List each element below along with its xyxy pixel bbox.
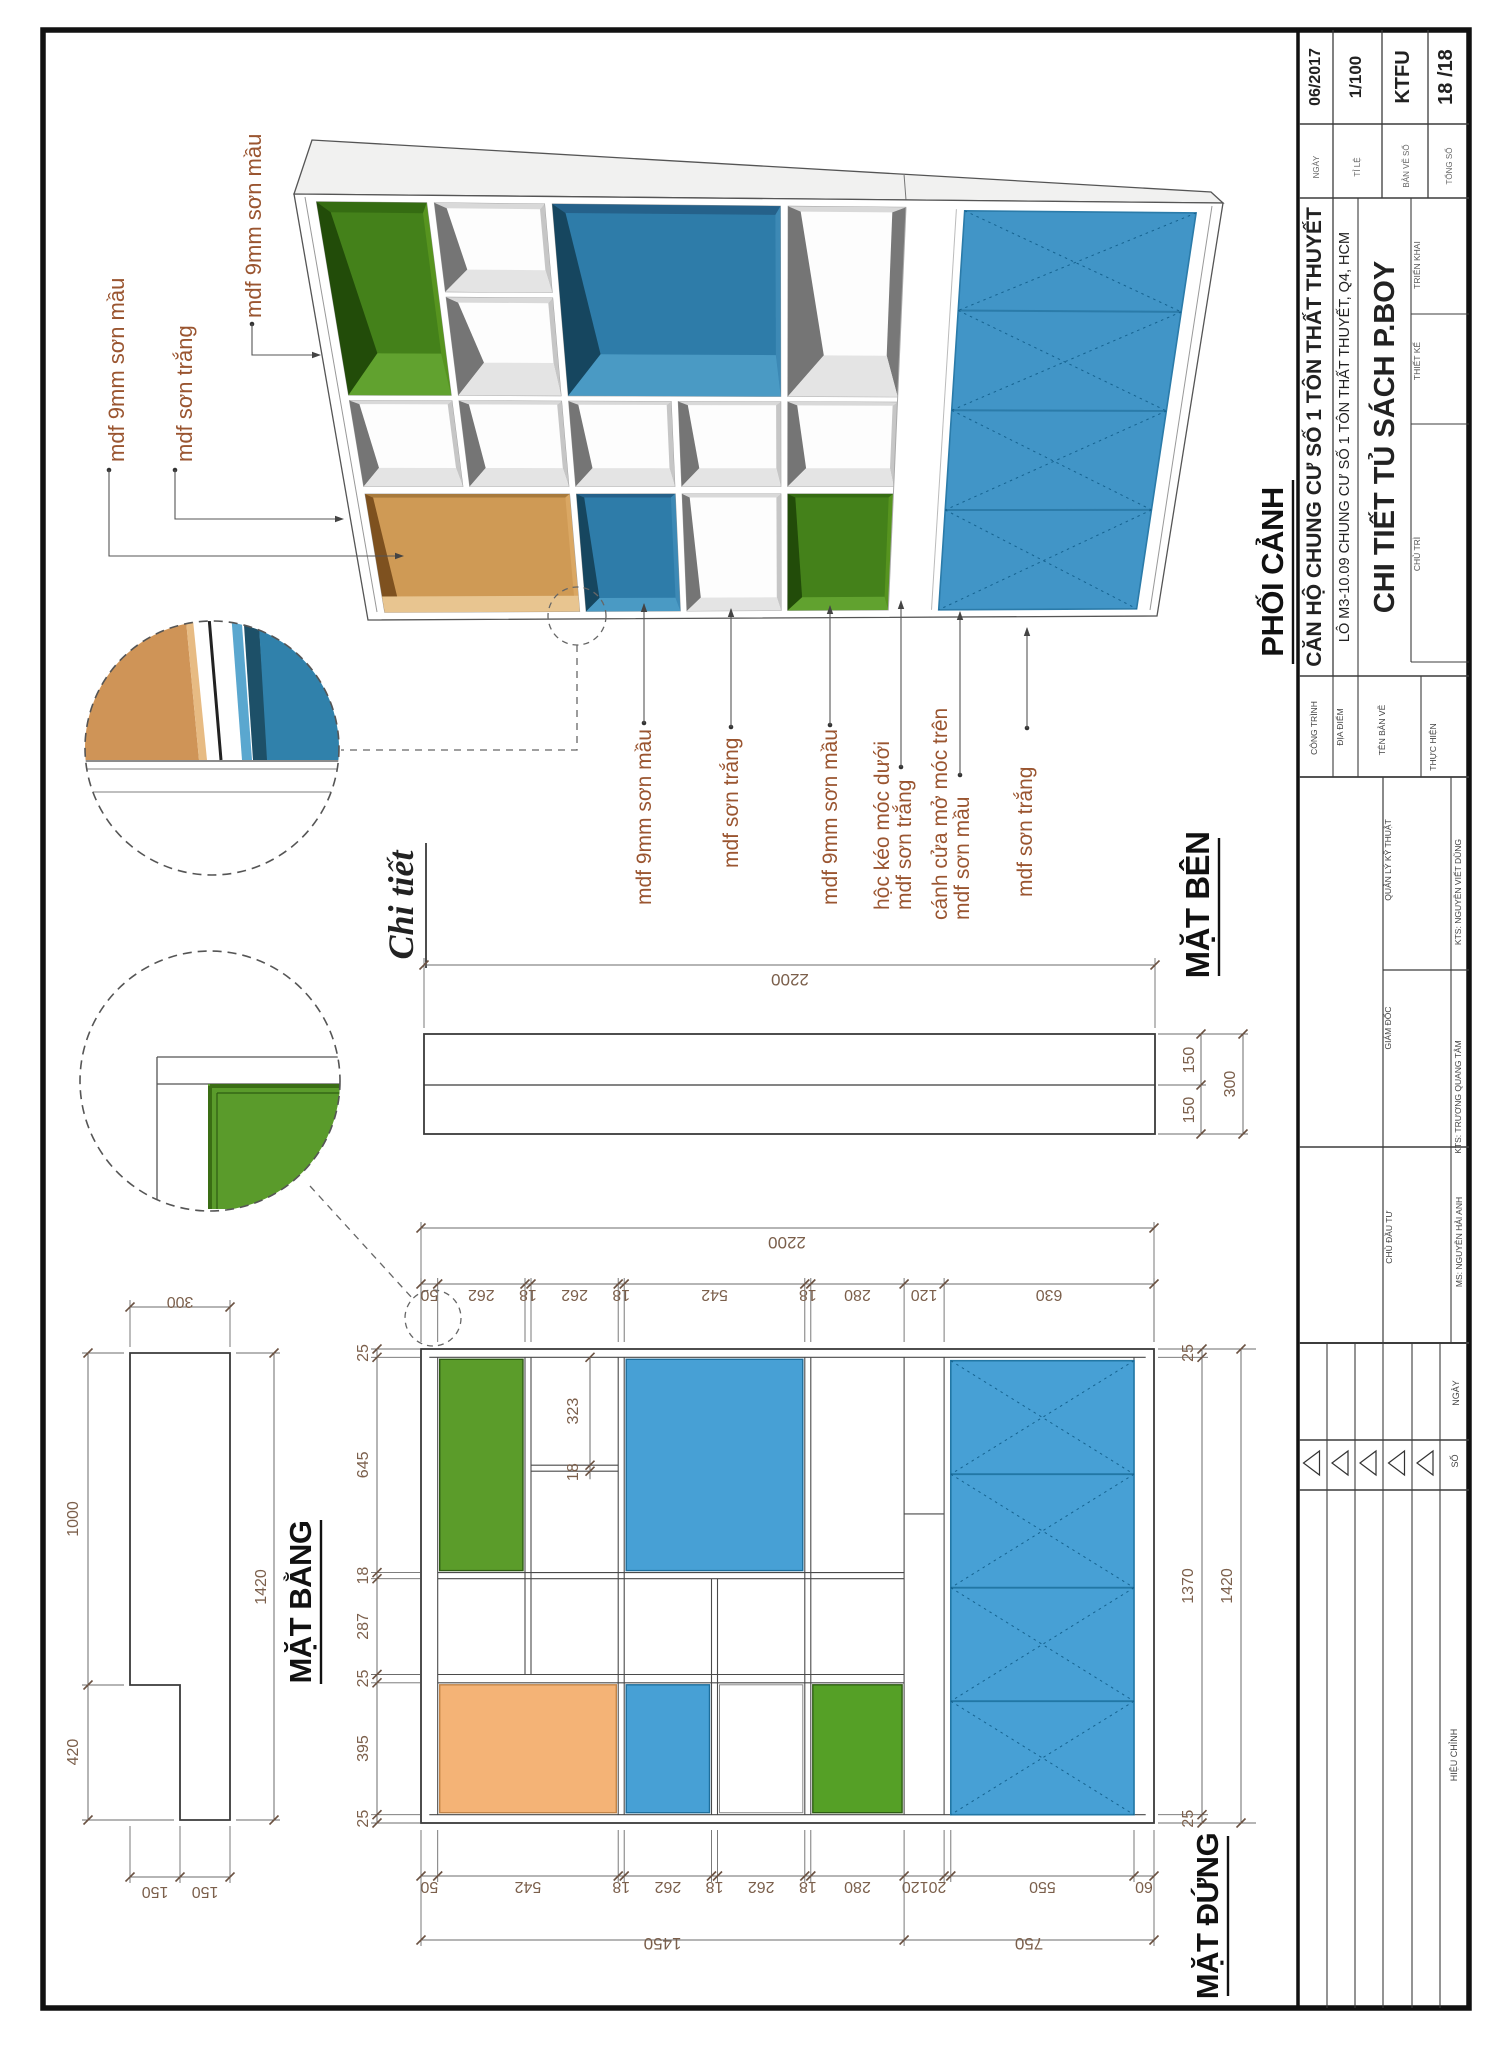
- svg-text:mdf sơn trắng: mdf sơn trắng: [1014, 767, 1037, 898]
- svg-text:1450: 1450: [644, 1934, 682, 1953]
- svg-text:300: 300: [167, 1293, 194, 1310]
- svg-text:395: 395: [355, 1735, 372, 1762]
- svg-text:25: 25: [1180, 1810, 1197, 1828]
- svg-text:50: 50: [420, 1878, 438, 1895]
- svg-text:MẶT BÊN: MẶT BÊN: [1179, 832, 1216, 979]
- svg-text:CHỦ ĐẦU TƯ: CHỦ ĐẦU TƯ: [1383, 1210, 1394, 1263]
- svg-text:TỔNG SỐ: TỔNG SỐ: [1444, 148, 1454, 185]
- svg-text:150: 150: [142, 1883, 169, 1900]
- svg-text:262: 262: [468, 1286, 495, 1303]
- svg-text:MẶT ĐỨNG: MẶT ĐỨNG: [1189, 1833, 1225, 1999]
- svg-text:mdf sơn trắng: mdf sơn trắng: [172, 325, 197, 462]
- svg-text:MS: NGUYỄN HẢI ANH: MS: NGUYỄN HẢI ANH: [1453, 1197, 1464, 1287]
- svg-text:262: 262: [561, 1286, 588, 1303]
- svg-text:630: 630: [1036, 1286, 1063, 1303]
- svg-text:750: 750: [1015, 1934, 1043, 1953]
- svg-text:Chi tiết: Chi tiết: [381, 849, 421, 959]
- svg-text:542: 542: [515, 1878, 542, 1895]
- svg-text:hộc kéo móc dưới: hộc kéo móc dưới: [871, 741, 894, 910]
- svg-text:mdf 9mm sơn mầu: mdf 9mm sơn mầu: [241, 134, 266, 318]
- svg-text:18: 18: [355, 1567, 372, 1585]
- svg-text:mdf sơn trắng: mdf sơn trắng: [720, 738, 743, 869]
- svg-text:323: 323: [565, 1398, 582, 1425]
- svg-text:HIỆU CHỈNH: HIỆU CHỈNH: [1448, 1729, 1459, 1782]
- svg-text:TRIỂN KHAI: TRIỂN KHAI: [1411, 241, 1422, 289]
- svg-text:KTS: NGUYỄN VIẾT DŨNG: KTS: NGUYỄN VIẾT DŨNG: [1452, 839, 1463, 945]
- svg-text:KTFU: KTFU: [1392, 50, 1414, 103]
- svg-text:120: 120: [911, 1286, 938, 1303]
- svg-text:MẶT BẰNG: MẶT BẰNG: [283, 1520, 318, 1683]
- svg-text:25: 25: [355, 1669, 372, 1687]
- svg-text:300: 300: [1222, 1071, 1239, 1098]
- svg-text:280: 280: [844, 1878, 871, 1895]
- svg-text:1420: 1420: [1219, 1568, 1236, 1604]
- svg-text:262: 262: [654, 1878, 681, 1895]
- svg-text:542: 542: [701, 1286, 728, 1303]
- svg-text:QUẢN LÝ KỸ THUẬT: QUẢN LÝ KỸ THUẬT: [1382, 819, 1393, 901]
- svg-text:BẢN VẼ SỐ: BẢN VẼ SỐ: [1401, 144, 1411, 187]
- svg-text:550: 550: [1029, 1878, 1056, 1895]
- svg-text:150: 150: [192, 1883, 219, 1900]
- svg-text:GIÁM ĐỐC: GIÁM ĐỐC: [1382, 1007, 1393, 1050]
- svg-text:2200: 2200: [768, 1233, 806, 1252]
- svg-text:mdf 9mm sơn mầu: mdf 9mm sơn mầu: [104, 278, 129, 462]
- svg-text:LÔ M3-10.09 CHUNG CƯ SỐ 1 TÔN: LÔ M3-10.09 CHUNG CƯ SỐ 1 TÔN THẤT THUYẾ…: [1335, 232, 1353, 642]
- svg-text:150: 150: [1181, 1097, 1198, 1124]
- svg-text:cánh cửa mở móc trên: cánh cửa mở móc trên: [929, 708, 952, 920]
- svg-text:SỐ: SỐ: [1449, 1454, 1460, 1467]
- svg-text:18: 18: [612, 1286, 630, 1303]
- svg-text:18 /18: 18 /18: [1435, 49, 1457, 105]
- svg-text:18: 18: [612, 1878, 630, 1895]
- svg-text:CHỦ TRÌ: CHỦ TRÌ: [1411, 537, 1422, 571]
- svg-text:1000: 1000: [65, 1501, 82, 1537]
- svg-text:150: 150: [1181, 1047, 1198, 1074]
- svg-text:1370: 1370: [1180, 1568, 1197, 1604]
- svg-text:420: 420: [65, 1739, 82, 1766]
- svg-text:THỰC HIỆN: THỰC HIỆN: [1428, 723, 1438, 770]
- svg-text:ĐỊA ĐIỂM: ĐỊA ĐIỂM: [1334, 708, 1345, 745]
- svg-text:280: 280: [844, 1286, 871, 1303]
- svg-text:645: 645: [355, 1451, 372, 1478]
- svg-text:18: 18: [519, 1286, 537, 1303]
- svg-text:20120: 20120: [902, 1878, 947, 1895]
- svg-text:NGÀY: NGÀY: [1312, 155, 1321, 178]
- svg-text:06/2017: 06/2017: [1307, 48, 1324, 106]
- svg-text:50: 50: [420, 1286, 438, 1303]
- svg-text:2200: 2200: [771, 970, 809, 989]
- svg-text:18: 18: [799, 1286, 817, 1303]
- svg-text:mdf 9mm sơn mầu: mdf 9mm sơn mầu: [633, 729, 656, 905]
- svg-text:1/100: 1/100: [1346, 56, 1365, 99]
- svg-text:mdf sơn mầu: mdf sơn mầu: [951, 797, 974, 920]
- svg-text:CÔNG TRÌNH: CÔNG TRÌNH: [1309, 701, 1319, 755]
- svg-text:262: 262: [748, 1878, 775, 1895]
- svg-text:25: 25: [355, 1810, 372, 1828]
- svg-text:1420: 1420: [253, 1569, 270, 1605]
- svg-text:TÊN BẢN VẼ: TÊN BẢN VẼ: [1376, 704, 1387, 755]
- svg-text:18: 18: [799, 1878, 817, 1895]
- svg-text:287: 287: [355, 1613, 372, 1640]
- svg-text:18: 18: [706, 1878, 724, 1895]
- svg-text:25: 25: [355, 1344, 372, 1362]
- svg-text:NGÀY: NGÀY: [1451, 1380, 1461, 1406]
- svg-text:25: 25: [1180, 1344, 1197, 1362]
- svg-text:60: 60: [1135, 1878, 1153, 1895]
- svg-text:CHI TIẾT TỦ SÁCH P.BOY: CHI TIẾT TỦ SÁCH P.BOY: [1367, 261, 1401, 613]
- svg-text:mdf 9mm sơn mầu: mdf 9mm sơn mầu: [819, 729, 842, 905]
- svg-text:TỈ LỆ: TỈ LỆ: [1353, 157, 1362, 176]
- svg-text:THIẾT KẾ: THIẾT KẾ: [1412, 342, 1422, 380]
- svg-text:CĂN HỘ CHUNG CƯ SỐ 1 TÔN THẤT: CĂN HỘ CHUNG CƯ SỐ 1 TÔN THẤT THUYẾT: [1302, 207, 1326, 667]
- svg-text:KTS: TRƯƠNG QUANG TÂM: KTS: TRƯƠNG QUANG TÂM: [1453, 1040, 1463, 1153]
- svg-text:PHỐI CẢNH: PHỐI CẢNH: [1254, 487, 1290, 656]
- svg-text:mdf sơn trắng: mdf sơn trắng: [893, 780, 916, 911]
- svg-text:18: 18: [565, 1463, 582, 1481]
